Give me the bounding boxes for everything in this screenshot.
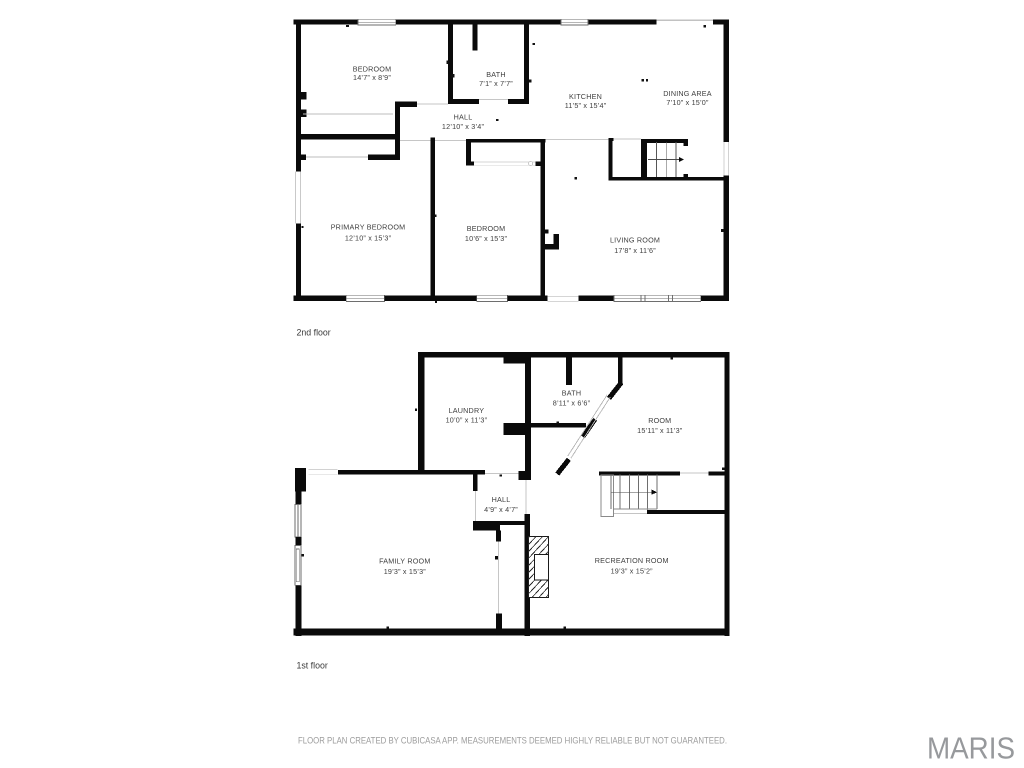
svg-text:4’9” x 4’7”: 4’9” x 4’7” [484,505,518,514]
svg-text:17’8” x 11’6”: 17’8” x 11’6” [614,246,656,255]
svg-text:FAMILY ROOM: FAMILY ROOM [379,557,430,566]
svg-text:RECREATION ROOM: RECREATION ROOM [595,556,669,565]
svg-text:LIVING ROOM: LIVING ROOM [610,236,660,245]
svg-text:10’6” x 15’3”: 10’6” x 15’3” [465,234,508,243]
svg-text:LAUNDRY: LAUNDRY [449,406,485,415]
svg-text:19’3” x 15’3”: 19’3” x 15’3” [384,567,427,576]
svg-text:14’7” x 8’9”: 14’7” x 8’9” [353,73,391,82]
svg-text:KITCHEN: KITCHEN [569,92,602,101]
svg-text:BATH: BATH [562,389,581,398]
svg-text:8’11” x 6’6”: 8’11” x 6’6” [553,399,591,408]
svg-text:BATH: BATH [486,70,505,79]
svg-text:DINING AREA: DINING AREA [663,89,712,98]
svg-text:MARIS: MARIS [927,732,1015,766]
svg-text:15’11” x 11’3”: 15’11” x 11’3” [637,426,683,435]
svg-text:PRIMARY BEDROOM: PRIMARY BEDROOM [331,223,406,232]
svg-text:1st floor: 1st floor [297,661,328,671]
svg-text:19’3” x 15’2”: 19’3” x 15’2” [611,567,654,576]
svg-text:2nd floor: 2nd floor [297,328,331,338]
svg-text:11’5” x 15’4”: 11’5” x 15’4” [565,101,607,110]
svg-text:HALL: HALL [454,113,473,122]
svg-text:7’1” x 7’7”: 7’1” x 7’7” [479,79,513,88]
svg-text:ROOM: ROOM [648,416,671,425]
svg-text:FLOOR PLAN CREATED BY CUBICASA: FLOOR PLAN CREATED BY CUBICASA APP. MEAS… [298,736,727,746]
svg-text:10’0” x 11’3”: 10’0” x 11’3” [446,416,488,425]
svg-text:7’10” x 15’0”: 7’10” x 15’0” [666,98,709,107]
svg-text:12’10” x 3’4”: 12’10” x 3’4” [442,122,485,131]
svg-text:12’10” x 15’3”: 12’10” x 15’3” [345,234,392,243]
svg-text:BEDROOM: BEDROOM [467,224,506,233]
svg-text:HALL: HALL [492,495,511,504]
